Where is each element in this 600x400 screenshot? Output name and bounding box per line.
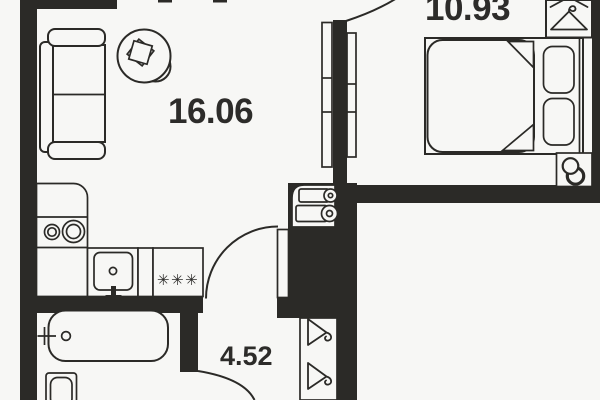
wall-bedroom-right <box>592 0 600 203</box>
wall-left <box>20 0 37 400</box>
floor-plan-drawing: 16.06 ✳✳✳ <box>0 0 600 400</box>
panel-living-side <box>322 23 332 168</box>
bathtub-icon <box>49 311 169 362</box>
counter-gap <box>138 248 153 297</box>
stove-burners-symbol: ✳✳✳ <box>157 271 199 289</box>
water-heater-icon <box>324 189 337 202</box>
bedroom: 10.93 <box>347 0 592 187</box>
living-room: 16.06 <box>40 23 332 168</box>
bedroom-area-label: 10.93 <box>425 0 510 28</box>
wall-bathroom-right <box>180 310 198 372</box>
wall-closet-right <box>337 300 357 400</box>
hallway-area-label: 4.52 <box>220 341 273 371</box>
sink-faucet-icon <box>105 295 122 301</box>
hall-door-arc <box>206 227 278 299</box>
bedroom-door-arc <box>346 0 403 21</box>
bed-mattress <box>428 40 535 152</box>
sofa-armrest-bottom <box>48 142 105 159</box>
sofa-back <box>40 42 53 152</box>
panel-bedroom-side <box>347 33 356 157</box>
wall-partition-living-bedroom <box>333 20 347 185</box>
pillow <box>544 99 575 146</box>
pipe-riser-icon <box>563 158 579 174</box>
bathroom-door-arc <box>198 371 255 400</box>
sink-faucet-icon <box>111 286 116 296</box>
bathroom <box>38 311 169 400</box>
kitchen: ✳✳✳ <box>37 183 204 301</box>
wall-bedroom-bottom <box>340 185 600 203</box>
living-room-area-label: 16.06 <box>168 92 253 131</box>
sofa-armrest-top <box>48 29 105 46</box>
floor-plan: 16.06 ✳✳✳ <box>0 0 600 400</box>
door-leaf <box>278 230 289 298</box>
closet <box>300 318 337 400</box>
cropped-text-fragment <box>158 0 172 3</box>
pillow <box>544 47 575 94</box>
decor-square-front <box>129 41 153 65</box>
sofa-seat <box>53 45 105 142</box>
wall-closet-top <box>277 297 337 318</box>
cropped-text-fragment <box>213 0 227 3</box>
water-heater-icon <box>322 206 338 222</box>
